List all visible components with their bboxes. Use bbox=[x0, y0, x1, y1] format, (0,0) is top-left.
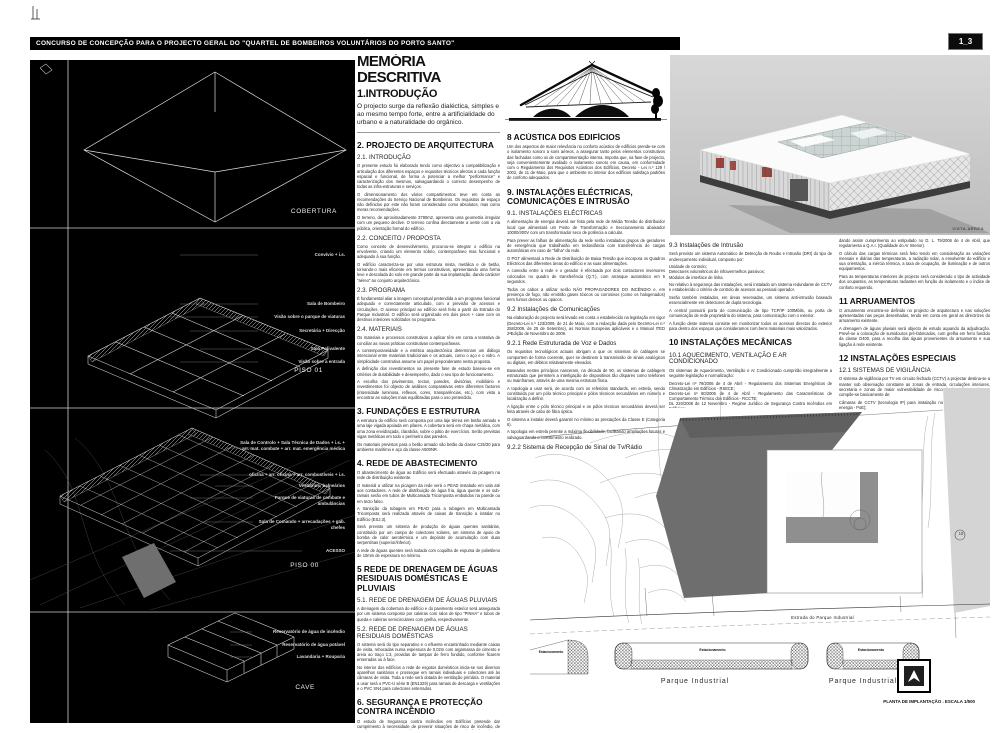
page-title: MEMÓRIA DESCRITIVA bbox=[357, 54, 500, 86]
body-paragraph: A conexão entre a rede e o gerador é efe… bbox=[507, 268, 665, 284]
text-column-4: dando assim cumprimento ao estipulado no… bbox=[839, 238, 990, 410]
room-label: Sala de Controlo + Sala Técnica de Dados… bbox=[235, 440, 345, 451]
subsection-heading: 5.2. REDE DE DRENAGEM DE ÁGUAS RESIDUAIS… bbox=[357, 627, 500, 641]
body-list: Unidade de controlo; Detectores volumétr… bbox=[669, 264, 832, 280]
room-label: Visão sobre o parque de viaturas bbox=[260, 314, 345, 320]
body-paragraph: É fundamental aliar a imagem conceptual … bbox=[357, 296, 500, 322]
body-paragraph: Um dos aspectos de maior relevância no c… bbox=[507, 144, 665, 180]
body-paragraph: O edifício caracteriza-se por uma estrut… bbox=[357, 262, 500, 283]
subsection-heading: 2.2. CONCEITO / PROPOSTA bbox=[357, 236, 500, 243]
room-label: Convívio + i.s. bbox=[260, 252, 345, 258]
subsection-heading: 2.3. PROGRAMA bbox=[357, 288, 500, 295]
body-paragraph: O sistema será do tipo separativo e o ef… bbox=[357, 642, 500, 663]
body-paragraph: Como conceito de desenvolvimento, procur… bbox=[357, 244, 500, 260]
subsection-heading: 9.3 Instalações de Intrusão bbox=[669, 243, 832, 250]
body-paragraph: A transição da tubagem em PEAD para a tu… bbox=[357, 506, 500, 522]
section-heading: 12 INSTALAÇÕES ESPECIAIS bbox=[839, 354, 990, 363]
body-paragraph: Será previsto um sistema Automático de D… bbox=[669, 251, 832, 261]
body-paragraph: Para prever as falhas de alimentação da … bbox=[507, 238, 665, 254]
plan-caption: PLANTA DE IMPLANTAÇÃO . ESCALA 1/500 bbox=[825, 699, 975, 704]
parking-label: Estacionamento bbox=[835, 648, 907, 652]
aerial-drawing bbox=[670, 55, 990, 235]
subsection-heading: 12.1 SISTEMAS DE VIGILÂNCIA bbox=[839, 368, 990, 375]
body-paragraph: A rede de águas quentes será isolada com… bbox=[357, 548, 500, 558]
intro-heading: 1.INTRODUÇÃO bbox=[357, 88, 500, 100]
intro-paragraph: O projecto surge da reflexão dialéctica,… bbox=[357, 103, 500, 127]
body-paragraph: Os requisitos tecnológicos actuais obrig… bbox=[507, 349, 665, 365]
body-paragraph: A alimentação de energia deverá ser feit… bbox=[507, 219, 665, 235]
room-label: Lavandaria + Rouparia bbox=[255, 654, 345, 660]
body-paragraph: A central possuirá porta de comunicação … bbox=[669, 308, 832, 318]
body-paragraph: Os materiais previstos para o betão arma… bbox=[357, 442, 500, 452]
room-label: Vestiários, balneários bbox=[255, 483, 345, 489]
body-paragraph: Todos os cabos a utilizar serão NÃO PROP… bbox=[507, 287, 665, 303]
body-paragraph: O cálculo das cargas térmicas será feito… bbox=[839, 251, 990, 272]
parking-label: Estacionamento bbox=[675, 648, 750, 652]
room-label: Reservatório de água de incêndio bbox=[255, 629, 345, 635]
body-paragraph: O material a utilizar na picagem da rede… bbox=[357, 483, 500, 504]
section-heading: 3. FUNDAÇÕES E ESTRUTURA bbox=[357, 407, 500, 416]
section-heading: 10 INSTALAÇÕES MECÂNICAS bbox=[669, 338, 832, 347]
body-paragraph: No relativo à segurança das instalações,… bbox=[669, 282, 832, 292]
body-paragraph: O arruamento encontra-se definido no pro… bbox=[839, 308, 990, 324]
body-paragraph: No interior dos edifícios a rede de esgo… bbox=[357, 665, 500, 691]
room-label: Sala de Bombeiro bbox=[260, 301, 345, 307]
subsection-heading: 10.1 AQUECIMENTO, VENTILAÇÃO E AR CONDIC… bbox=[669, 353, 832, 367]
room-label: Secretária + Direcção bbox=[260, 328, 345, 334]
body-paragraph: A drenagem de águas pluviais será object… bbox=[839, 326, 990, 347]
room-label: Parque de viaturas de combate e ambulânc… bbox=[250, 495, 345, 506]
section-heading: 4. REDE DE ABASTECIMENTO bbox=[357, 459, 500, 468]
floorplans-panel: COBERTURA PISO 01 PISO 00 CAVE Convívio … bbox=[30, 60, 355, 723]
floor-label-piso00: PISO 00 bbox=[290, 562, 319, 569]
section-heading: 2. PROJECTO DE ARQUITECTURA bbox=[357, 141, 500, 150]
room-label: ACESSO bbox=[305, 548, 345, 554]
body-paragraph: Na elaboração do projecto será levado em… bbox=[507, 315, 665, 336]
body-paragraph: O dimensionamento dos vários compartimen… bbox=[357, 192, 500, 213]
subsection-heading: 9.1. INSTALAÇÕES ELÉCTRICAS bbox=[507, 211, 665, 218]
room-label: Sala de Comando + arrecadações + gab. ch… bbox=[250, 519, 345, 530]
aerial-render: VISTA AÉREA bbox=[670, 55, 990, 235]
aerial-caption: VISTA AÉREA bbox=[952, 226, 984, 231]
room-label: oficina + arr. oficina + arr. combustíve… bbox=[245, 472, 345, 478]
subsection-heading: 2.4. MATERIAIS bbox=[357, 327, 500, 334]
parking-label: Estacionamento bbox=[532, 650, 570, 654]
room-label: Visão sobre a entrada bbox=[260, 359, 345, 365]
floor-label-cave: CAVE bbox=[295, 684, 315, 691]
body-paragraph: O abastecimento de água ao Edifício será… bbox=[357, 470, 500, 480]
body-paragraph: A função deste sistema consiste em monit… bbox=[669, 321, 832, 331]
floor-label-piso01: PISO 01 bbox=[294, 367, 323, 374]
north-arrow-icon bbox=[898, 660, 930, 692]
body-paragraph: A drenagem da cobertura do edifício e do… bbox=[357, 606, 500, 622]
body-paragraph: O terreno, de aproximadamente 3790m2, ap… bbox=[357, 215, 500, 231]
competition-title-bar: CONCURSO DE CONCEPÇÃO PARA O PROJECTO GE… bbox=[30, 37, 680, 50]
road-label: Estrada do Parque Industrial bbox=[765, 615, 880, 620]
body-paragraph: Os sistemas de Aquecimento, Ventilação e… bbox=[669, 368, 832, 378]
body-paragraph: A estrutura do edifício será composta po… bbox=[357, 418, 500, 439]
sketch-drawing bbox=[505, 55, 670, 133]
section-heading: 8 ACÚSTICA DOS EDIFÍCIOS bbox=[507, 133, 665, 142]
section-heading: 11 ARRUAMENTOS bbox=[839, 297, 990, 306]
body-paragraph: A contemporaneidade e a estética arquite… bbox=[357, 348, 500, 364]
section-heading: 6. SEGURANÇA E PROTECÇÃO CONTRA INCÊNDIO bbox=[357, 698, 500, 717]
body-paragraph: Serão também instalados, em áreas reserv… bbox=[669, 295, 832, 305]
body-paragraph: O estudo de Segurança contra Incêndios e… bbox=[357, 719, 500, 730]
site-plan-drawing bbox=[530, 388, 990, 723]
body-paragraph: Será previsto um sistema de produção de … bbox=[357, 524, 500, 545]
site-plan: Estrada do Parque Industrial Estacioname… bbox=[530, 388, 990, 723]
text-column-3: 9.3 Instalações de Intrusão Será previst… bbox=[669, 238, 832, 408]
room-label: Sala Polivalente bbox=[260, 346, 345, 352]
floorplans-drawing bbox=[30, 60, 355, 723]
subsection-heading: 5.1. REDE DE DRENAGEM DE ÁGUAS PLUVIAIS bbox=[357, 598, 500, 605]
plot-number: 18 bbox=[954, 531, 968, 536]
body-paragraph: Os materiais e processos construtivos a … bbox=[357, 335, 500, 345]
page-number-badge: 1_3 bbox=[948, 33, 983, 50]
subsection-heading: 9.2 Instalações de Comunicações bbox=[507, 307, 665, 314]
floor-label-cobertura: COBERTURA bbox=[291, 208, 337, 215]
body-paragraph: Baseados nestes princípios nasceram, na … bbox=[507, 368, 665, 384]
district-label: Parque Industrial bbox=[808, 678, 918, 685]
section-heading: 9. INSTALAÇÕES ELÉCTRICAS, COMUNICAÇÕES … bbox=[507, 188, 665, 207]
room-label: Reservatório de água potável bbox=[255, 642, 345, 648]
registration-mark bbox=[30, 4, 46, 22]
section-divider bbox=[357, 132, 500, 133]
body-paragraph: Para as temperaturas interiores de proje… bbox=[839, 274, 990, 290]
body-paragraph: O PGT alimentará a Rede de Distribuição … bbox=[507, 256, 665, 266]
body-paragraph: dando assim cumprimento ao estipulado no… bbox=[839, 238, 990, 248]
body-paragraph: A escolha dos pavimentos, tectos, parede… bbox=[357, 379, 500, 400]
subsection-heading: 2.1. INTRODUÇÃO bbox=[357, 155, 500, 162]
concept-sketch bbox=[505, 55, 670, 133]
district-label: Parque Industrial bbox=[635, 678, 755, 685]
subsection-heading: 9.2.1 Rede Estruturada de Voz e Dados bbox=[507, 341, 665, 348]
body-paragraph: O presente estudo foi elaborado tendo co… bbox=[357, 163, 500, 189]
memoria-column: MEMÓRIA DESCRITIVA 1.INTRODUÇÃO O projec… bbox=[357, 54, 500, 730]
competition-title: CONCURSO DE CONCEPÇÃO PARA O PROJECTO GE… bbox=[36, 40, 455, 47]
presentation-board: CONCURSO DE CONCEPÇÃO PARA O PROJECTO GE… bbox=[0, 0, 1000, 733]
body-paragraph: A definição dos revestimentos na present… bbox=[357, 366, 500, 376]
section-heading: 5 REDE DE DRENAGEM DE ÁGUAS RESIDUAIS DO… bbox=[357, 565, 500, 593]
